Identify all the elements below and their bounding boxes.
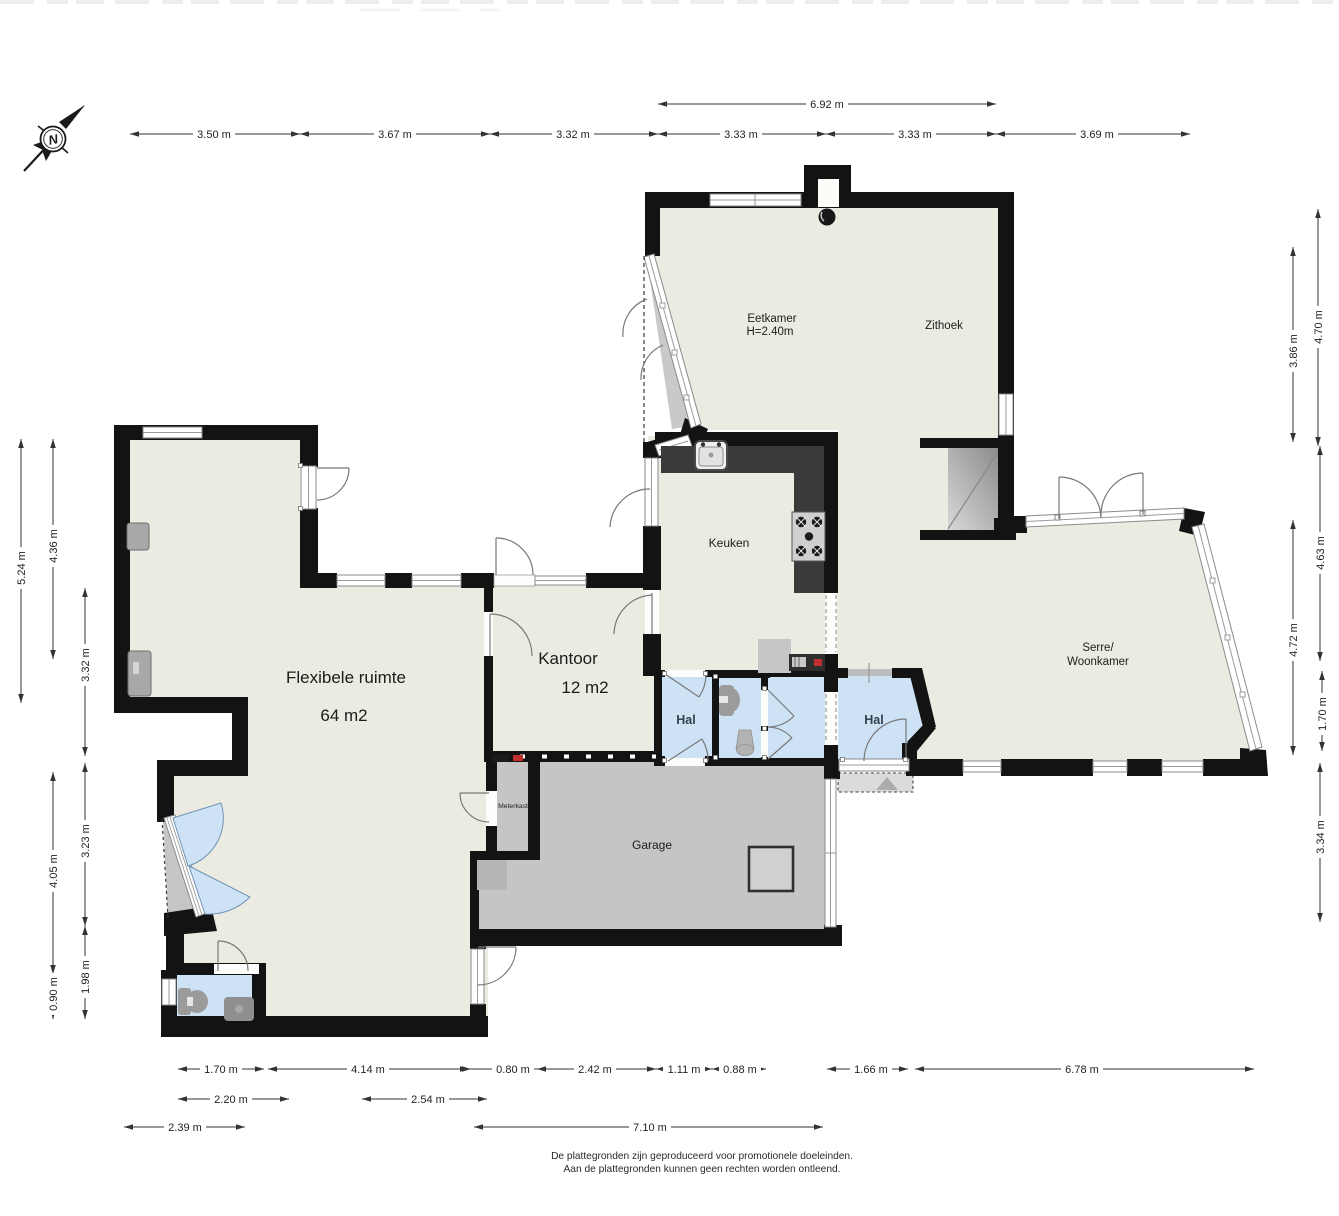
svg-text:4.63 m: 4.63 m [1315,536,1327,570]
svg-text:Kantoor: Kantoor [538,649,598,668]
svg-text:3.69 m: 3.69 m [1080,129,1114,141]
svg-text:6.78 m: 6.78 m [1065,1064,1099,1076]
svg-text:Aan de plattegronden kunnen ge: Aan de plattegronden kunnen geen rechten… [564,1164,841,1175]
svg-text:3.34 m: 3.34 m [1315,820,1327,854]
svg-text:Meterkast: Meterkast [498,803,528,810]
svg-text:7.10 m: 7.10 m [633,1122,667,1134]
svg-text:4.14 m: 4.14 m [351,1064,385,1076]
svg-text:Hal: Hal [676,713,695,727]
svg-text:Garage: Garage [632,838,672,852]
svg-text:1.66 m: 1.66 m [854,1064,888,1076]
svg-text:6.92 m: 6.92 m [810,99,844,111]
svg-text:H=2.40m: H=2.40m [747,326,794,338]
svg-text:Eetkamer: Eetkamer [747,313,796,325]
svg-text:2.54 m: 2.54 m [411,1094,445,1106]
svg-text:1.70 m: 1.70 m [204,1064,238,1076]
svg-text:Keuken: Keuken [709,536,750,550]
svg-text:4.36 m: 4.36 m [48,529,60,563]
svg-text:3.32 m: 3.32 m [556,129,590,141]
svg-text:1.11 m: 1.11 m [668,1064,701,1076]
svg-text:Flexibele ruimte: Flexibele ruimte [286,668,406,687]
svg-text:Serre/: Serre/ [1082,642,1114,654]
svg-text:3.33 m: 3.33 m [898,129,932,141]
svg-text:2.39 m: 2.39 m [168,1122,202,1134]
svg-text:3.50 m: 3.50 m [197,129,231,141]
svg-text:Woonkamer: Woonkamer [1067,656,1129,668]
svg-text:1.98 m: 1.98 m [80,960,92,994]
svg-text:3.23 m: 3.23 m [80,824,92,858]
svg-text:4.70 m: 4.70 m [1313,310,1325,344]
svg-text:5.24 m: 5.24 m [16,551,28,585]
svg-text:12 m2: 12 m2 [561,678,608,697]
svg-text:Hal: Hal [864,713,883,727]
svg-text:3.32 m: 3.32 m [80,648,92,682]
svg-text:0.90 m: 0.90 m [48,977,60,1011]
svg-text:2.20 m: 2.20 m [214,1094,248,1106]
svg-text:0.80 m: 0.80 m [496,1064,530,1076]
svg-text:4.05 m: 4.05 m [48,854,60,888]
svg-text:Zithoek: Zithoek [925,320,963,332]
svg-text:3.86 m: 3.86 m [1288,334,1300,368]
svg-text:2.42 m: 2.42 m [578,1064,612,1076]
svg-text:64 m2: 64 m2 [320,706,367,725]
svg-text:1.70 m: 1.70 m [1317,697,1329,731]
svg-text:De plattegronden zijn geproduc: De plattegronden zijn geproduceerd voor … [551,1151,853,1162]
svg-text:0.88 m: 0.88 m [723,1064,757,1076]
svg-text:4.72 m: 4.72 m [1288,623,1300,657]
svg-text:3.67 m: 3.67 m [378,129,412,141]
svg-text:3.33 m: 3.33 m [724,129,758,141]
